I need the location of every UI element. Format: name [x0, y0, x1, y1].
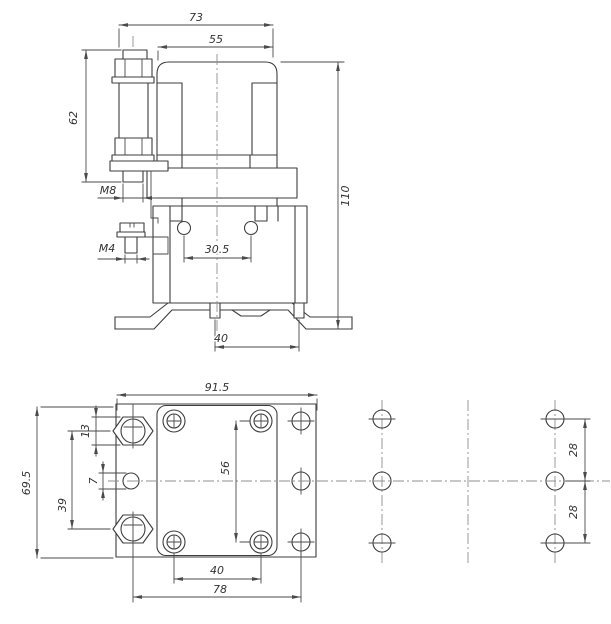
dim-housing-width-label: 55: [209, 33, 223, 46]
side-elevation-view: 73 55 62 M8 M4: [67, 11, 352, 351]
screw-washer: [117, 232, 145, 237]
technical-drawing: 73 55 62 M8 M4: [0, 0, 611, 624]
dim-aux-thread-label: M4: [99, 242, 116, 255]
dim-overall-height-label: 110: [339, 186, 352, 207]
drill-pattern: [369, 400, 569, 564]
dim-pin-spacing-label: 40: [214, 332, 228, 345]
bolt-body: [119, 83, 148, 138]
dim-screw-pitch-v-label: 56: [219, 461, 232, 475]
bottom-plan-view: 91.5 69.5 13 39 7: [20, 381, 610, 602]
top-locknut: [123, 50, 147, 59]
mounting-bracket: [115, 303, 352, 329]
washer-upper: [112, 77, 154, 83]
mounting-pin-left: [210, 303, 220, 318]
dim-plate-width-label: 91.5: [205, 381, 230, 394]
contact-housing: [153, 206, 307, 303]
dim-plate-depth-label: 69.5: [20, 471, 33, 496]
magnet-frame: [147, 168, 297, 206]
dim-screw-pitch-h-label: 40: [210, 564, 224, 577]
dim-drill-pitch-upper-label: 28: [567, 443, 580, 457]
terminal-flange: [110, 161, 168, 171]
hex-nut-lower: [115, 138, 152, 155]
dim-drill-pitch-lower-label: 28: [567, 505, 580, 519]
dim-hole-spacing-label: 30.5: [205, 243, 230, 256]
m8-stud: [123, 171, 143, 182]
washer-lower: [112, 155, 154, 161]
m4-shank: [125, 237, 137, 253]
dim-terminal-pitch-label: 39: [56, 498, 69, 512]
mounting-pin-right: [294, 303, 304, 318]
drawing-sheet: 73 55 62 M8 M4: [0, 0, 611, 624]
dim-mounting-pitch-label: 78: [213, 583, 227, 596]
dim-terminal-height-label: 62: [67, 111, 80, 125]
screw-head: [120, 223, 144, 232]
dim-aux-hole-dia-label: 7: [87, 478, 100, 485]
hex-nut-upper: [115, 59, 152, 77]
dim-overall-width-label: 73: [189, 11, 203, 24]
dim-terminal-thread-label: M8: [100, 184, 117, 197]
